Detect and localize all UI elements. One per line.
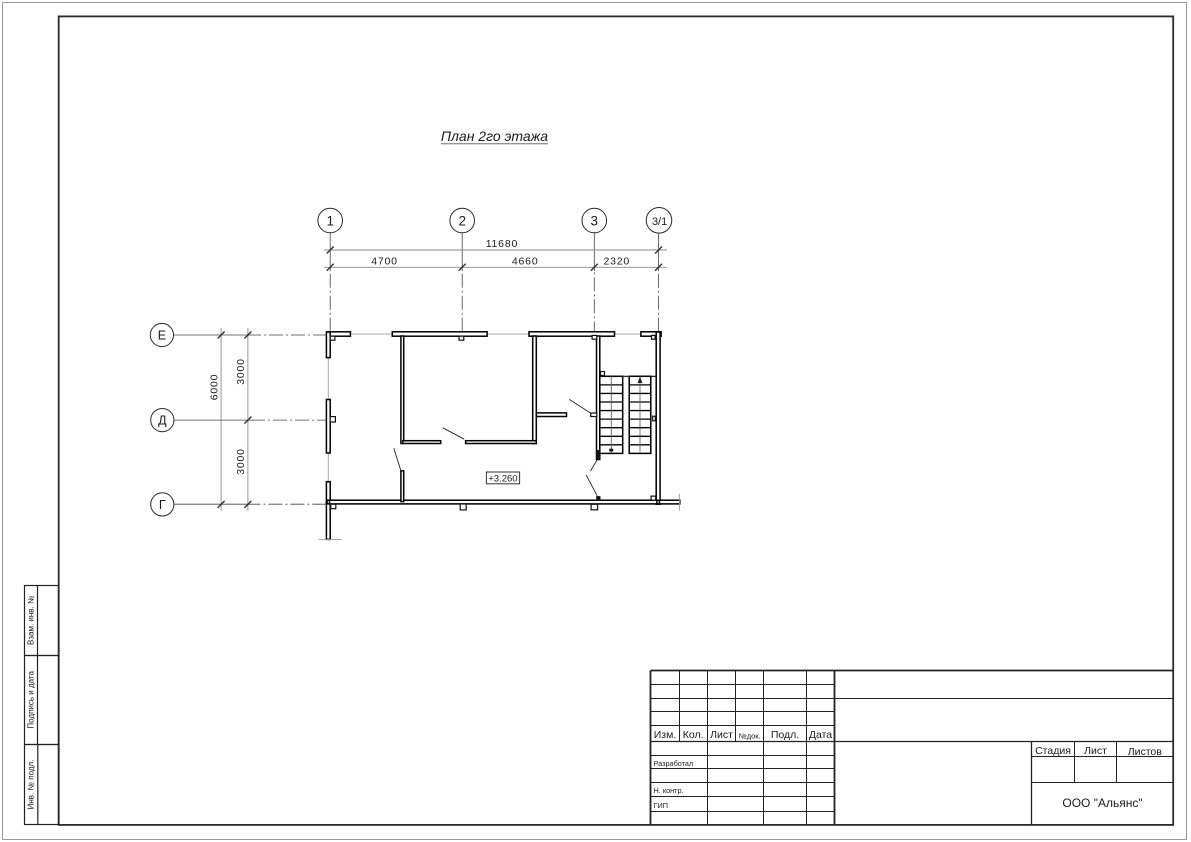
svg-text:3/1: 3/1 — [652, 216, 667, 228]
svg-text:Н. контр.: Н. контр. — [654, 786, 684, 795]
svg-text:Д: Д — [158, 414, 167, 428]
svg-text:4660: 4660 — [512, 255, 539, 267]
svg-text:2: 2 — [458, 213, 466, 228]
svg-text:1: 1 — [326, 213, 334, 228]
svg-text:Инв. № подл.: Инв. № подл. — [27, 760, 36, 810]
svg-text:Изм.: Изм. — [654, 729, 677, 741]
svg-text:Кол.: Кол. — [683, 729, 704, 741]
svg-text:Лист: Лист — [710, 729, 733, 741]
svg-text:Подл.: Подл. — [771, 729, 799, 741]
svg-text:Е: Е — [158, 329, 166, 343]
svg-text:ООО "Альянс": ООО "Альянс" — [1062, 796, 1142, 810]
svg-text:Стадия: Стадия — [1035, 745, 1071, 757]
svg-text:№док.: №док. — [739, 732, 761, 741]
svg-text:План 2го этажа: План 2го этажа — [441, 128, 548, 144]
svg-text:3: 3 — [591, 213, 599, 228]
svg-text:Лист: Лист — [1084, 745, 1107, 757]
svg-text:+3.260: +3.260 — [488, 474, 517, 485]
svg-text:4700: 4700 — [371, 255, 398, 267]
svg-text:3000: 3000 — [235, 358, 247, 385]
svg-text:Подпись и дата: Подпись и дата — [27, 670, 36, 728]
svg-text:Листов: Листов — [1128, 746, 1163, 758]
svg-text:Взам. инв. №: Взам. инв. № — [27, 595, 36, 645]
svg-text:11680: 11680 — [486, 238, 518, 250]
svg-text:ГИП: ГИП — [654, 801, 668, 810]
svg-text:6000: 6000 — [209, 374, 221, 401]
svg-text:2320: 2320 — [604, 255, 631, 267]
svg-text:Г: Г — [159, 498, 166, 512]
svg-text:Дата: Дата — [809, 729, 832, 741]
svg-text:3000: 3000 — [235, 448, 247, 475]
svg-text:Разработал: Разработал — [654, 759, 694, 768]
